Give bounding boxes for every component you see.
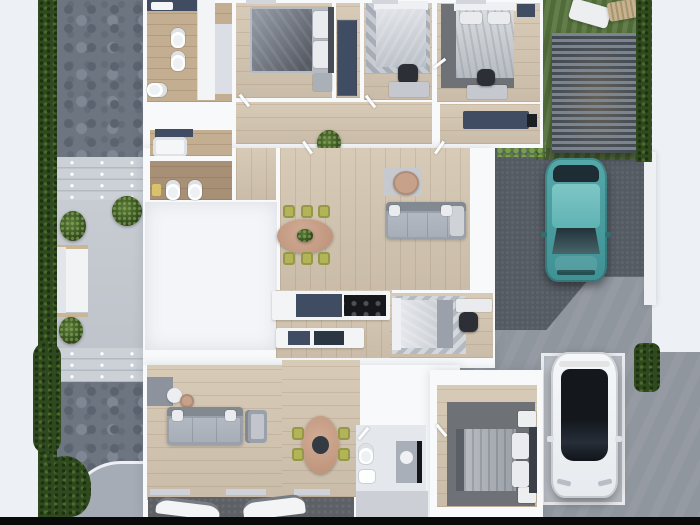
floorplan-scene [0,0,700,525]
bed2-desk [389,82,429,97]
teal-car-windshield [552,228,600,254]
garage-side-pad [356,491,428,517]
bed2-chair [398,64,418,84]
kitchen-counter-top [296,294,342,317]
teal-car-mirror [541,232,547,237]
white-car-glass-roof [561,369,608,461]
teal-car [545,158,607,282]
sofa-2-seats [169,418,241,442]
sofa-main-seats [388,213,450,237]
bed4-blanket [437,300,453,348]
kitchen-island-sink [314,331,344,345]
toilet-icon [166,180,180,200]
teal-car-rear-window [553,165,599,182]
kitchen-cooktop [344,295,386,316]
bath2-tub [153,137,187,157]
office-desk [456,299,492,312]
dining-chair [318,252,330,265]
shrub-left [33,342,61,454]
kitchen-island-top [288,331,310,345]
sofa-pillow [441,205,452,216]
sofa-2-pillow [225,410,236,421]
white-fence [644,152,656,305]
teal-car-grille [557,270,595,275]
bath1-sink [151,2,173,10]
hedge-right [636,0,652,162]
dining-centerpiece [297,229,313,242]
room-utility [145,202,277,350]
bed1-nightstand [313,74,332,91]
garden-bench-back [57,247,66,315]
bath3-sink [359,470,375,483]
toilet-icon [188,180,202,200]
sofa-2-pillow [172,410,183,421]
entry-steps-lower [57,348,143,383]
bed3-pillow [488,12,510,24]
white-car-mirror [615,436,622,442]
dining-chair [292,448,304,461]
bed5-headboard [529,427,537,493]
corner-plant [112,196,142,226]
bath1-vanity [197,0,215,100]
potted-plant-lower [59,317,83,344]
right-margin [652,0,700,352]
office-chair [459,312,478,332]
toilet-icon [359,444,373,464]
toilet-icon [171,51,185,71]
bed3-chair [477,69,495,86]
white-car-mirror [547,436,554,442]
coffee-table [393,171,419,195]
toilet-icon [147,83,167,97]
potted-plant-upper [60,211,86,241]
teal-car-mirror [605,232,611,237]
bed5-duvet [464,429,516,491]
wardrobe [337,20,357,96]
dining-chair [318,205,330,218]
hedge-near-pad [634,343,660,392]
bath2-towel [152,184,161,196]
teal-car-roof [552,184,600,228]
room-hall-2 [236,148,276,200]
window-mark [294,489,330,495]
bed3-nightstand [517,4,535,17]
sofa-pillow [389,205,400,216]
entry-side-table [527,114,537,127]
sofa-main-chaise [450,206,464,236]
bed5-nightstand [518,411,536,427]
bed3-pillow [460,12,482,24]
bath3-basin [400,451,413,464]
armchair-seat [251,414,264,439]
bath3-vanity-panel [417,441,422,483]
bed3-desk [467,85,507,99]
white-car [551,352,618,498]
bed5-pillow [512,433,529,459]
dining-chair [301,252,313,265]
garden-bench-seat [66,249,88,313]
side-table-wood [180,394,194,408]
dining-chair [283,252,295,265]
bottom-black-bar [0,517,700,525]
dining-chair [338,448,350,461]
bed2-duvet [376,9,426,67]
dining-chair [301,205,313,218]
window-mark [150,489,190,495]
bed5-pillow [512,461,529,487]
window-mark [456,0,486,4]
bed1-headboard [328,7,334,73]
dining-chair [338,427,350,440]
dining-chair [292,427,304,440]
bed1-duvet [252,9,312,71]
bed4-headboard [392,298,401,350]
toilet-icon [171,28,185,48]
window-mark [372,0,398,4]
window-mark [226,489,266,495]
window-mark [246,0,276,4]
bath1-shelf [215,24,232,94]
dining-2-centerpiece [312,436,329,454]
pergola-canopy [552,33,638,153]
entry-bench [463,111,529,129]
bush-large [39,456,91,517]
bath2-counter [155,129,193,137]
dining-chair [283,205,295,218]
white-car-trunk-line [559,361,610,367]
